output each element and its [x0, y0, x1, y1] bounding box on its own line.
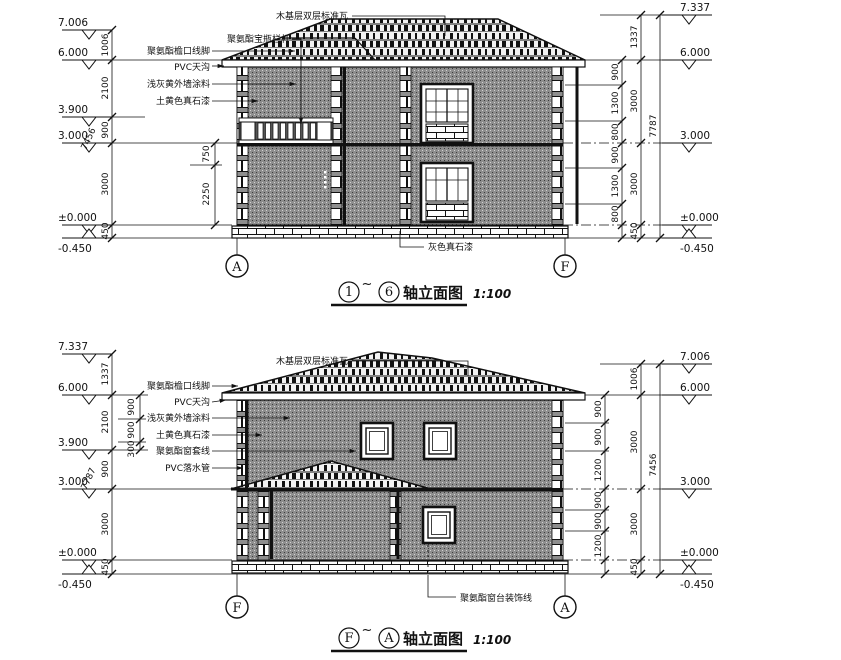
- level-label: -0.450: [58, 243, 92, 255]
- level-label: 3.900: [58, 437, 88, 449]
- annotation-gutter: PVC天沟: [174, 61, 210, 73]
- title-axis-start: F: [344, 631, 353, 646]
- bottom-left-dim-chain: 1337 2100 900 3000 450 7787 900 900 300: [80, 350, 144, 578]
- dim-value: 1006: [630, 367, 640, 390]
- plinth-brick-band: [232, 561, 568, 573]
- top-title: 1 ~ 6 轴立面图 1:100: [331, 277, 511, 305]
- annotation-roof-tile: 木基层双层标准瓦: [276, 355, 348, 367]
- title-axis-end: 6: [385, 285, 393, 300]
- dim-value: 450: [630, 558, 640, 575]
- axis-bubble-left: A: [231, 260, 242, 275]
- dim-total: 7456: [649, 453, 659, 476]
- balcony-railing: [239, 118, 333, 144]
- annotation-gutter: PVC天沟: [174, 396, 210, 408]
- window-spandrel-brick: [426, 203, 468, 220]
- dim-value: 800: [611, 205, 621, 222]
- annotation-sill-line: 聚氨酯窗台装饰线: [460, 592, 532, 604]
- dim-value: 3000: [630, 430, 640, 453]
- bottom-right-levels: 7.006 6.000 3.000 ±0.000 -0.450: [662, 351, 719, 591]
- eave-fascia-gutter: [222, 393, 585, 400]
- title-text: 轴立面图: [403, 630, 463, 648]
- level-label: ±0.000: [58, 212, 97, 224]
- level-label: 3.000: [680, 130, 710, 142]
- dim-value: 800: [611, 123, 621, 140]
- level-label: -0.450: [680, 579, 714, 591]
- annotation-downpipe: PVC落水管: [165, 462, 210, 474]
- dim-value: 1337: [630, 26, 640, 49]
- dim-value: 450: [101, 558, 111, 575]
- dim-value: 3000: [101, 512, 111, 535]
- top-building: [222, 19, 585, 238]
- upper-window-2: [424, 423, 456, 459]
- dim-value: 900: [127, 421, 137, 438]
- dim-value: 900: [594, 512, 604, 529]
- level-label: -0.450: [58, 579, 92, 591]
- dim-value: 450: [630, 222, 640, 239]
- dim-value: 3000: [630, 172, 640, 195]
- level-label: 6.000: [58, 47, 88, 59]
- annotation-eave-line: 聚氨酯檐口线脚: [147, 380, 210, 392]
- title-tilde: ~: [362, 277, 373, 292]
- dim-value: 750: [202, 145, 212, 162]
- dim-value: 1300: [611, 91, 621, 114]
- top-axis-bubbles: A F: [226, 238, 576, 277]
- dim-value: 2100: [101, 76, 111, 99]
- axis-bubble-right: F: [560, 260, 569, 275]
- level-label: 6.000: [680, 47, 710, 59]
- bottom-elevation: 7.337 6.000 3.900 3.000 ±0.000 -0.450 13…: [58, 341, 719, 651]
- dim-value: 1300: [611, 174, 621, 197]
- level-label: 3.900: [58, 104, 88, 116]
- bottom-building: [222, 352, 585, 573]
- annotation-window-trim: 聚氨酯窗套线: [156, 445, 210, 457]
- dim-value: 1337: [101, 363, 111, 386]
- dim-value: 900: [611, 63, 621, 80]
- elevation-drawing-canvas: 7.006 6.000 3.900 3.000 ±0.000 -0.450 10…: [0, 0, 841, 660]
- annotation-eave-line: 聚氨酯檐口线脚: [147, 45, 210, 57]
- annotation-roof-tile: 木基层双层标准瓦: [276, 10, 348, 22]
- dim-value: 3000: [630, 512, 640, 535]
- top-elevation: 7.006 6.000 3.900 3.000 ±0.000 -0.450 10…: [58, 2, 719, 305]
- level-label: ±0.000: [680, 547, 719, 559]
- annotation-baluster: 聚氨酯宝瓶栏杆: [227, 33, 290, 45]
- title-tilde: ~: [362, 623, 373, 638]
- axis-bubble-right: A: [559, 601, 570, 616]
- level-label: 7.337: [680, 2, 710, 14]
- dim-total: 7787: [80, 467, 99, 492]
- dim-value: 3000: [630, 89, 640, 112]
- dim-value: 3000: [101, 172, 111, 195]
- dim-value: 2250: [202, 182, 212, 205]
- level-label: 7.006: [680, 351, 710, 363]
- annotation-stone-paint: 土黄色真石漆: [156, 95, 210, 107]
- dim-value: 900: [101, 121, 111, 138]
- dim-value: 900: [611, 146, 621, 163]
- dim-value: 1200: [594, 458, 604, 481]
- level-label: 6.000: [58, 382, 88, 394]
- top-right-levels: 7.337 6.000 3.000 ±0.000 -0.450: [662, 2, 719, 255]
- bottom-title: F ~ A 轴立面图 1:100: [331, 623, 511, 651]
- annotation-plinth-paint: 灰色真石漆: [428, 241, 473, 253]
- axis-bubble-left: F: [232, 601, 241, 616]
- level-label: -0.450: [680, 243, 714, 255]
- window-spandrel-brick: [426, 124, 468, 141]
- dim-value: 900: [594, 491, 604, 508]
- top-left-dim-chain: 1006 2100 900 3000 450 7456 750 2250: [80, 26, 219, 242]
- dim-value: 450: [101, 222, 111, 239]
- floor-slab-line: [237, 488, 563, 492]
- upper-window-1: [361, 423, 393, 459]
- title-scale: 1:100: [473, 633, 511, 647]
- level-label: ±0.000: [58, 547, 97, 559]
- railing-post: [317, 122, 331, 140]
- dim-value: 900: [101, 460, 111, 477]
- title-scale: 1:100: [473, 287, 511, 301]
- architectural-elevation-sheet: 7.006 6.000 3.900 3.000 ±0.000 -0.450 10…: [0, 0, 841, 660]
- level-label: 7.006: [58, 17, 88, 29]
- annotation-stone-paint: 土黄色真石漆: [156, 429, 210, 441]
- dim-value: 1200: [594, 534, 604, 557]
- title-text: 轴立面图: [403, 284, 463, 302]
- lower-window: [423, 507, 455, 543]
- bottom-right-dim-chains: 900 900 1200 900 900 1200 1006 3000 3000…: [594, 360, 664, 578]
- annotation-wall-paint: 浅灰黄外墙涂料: [147, 412, 210, 424]
- title-axis-start: 1: [345, 285, 353, 300]
- upper-window: [421, 84, 473, 143]
- railing-post: [241, 122, 255, 140]
- dim-value: 900: [594, 400, 604, 417]
- dim-value: 1006: [101, 33, 111, 56]
- level-label: 6.000: [680, 382, 710, 394]
- lower-window: [421, 163, 473, 222]
- floor-slab-line: [237, 143, 563, 147]
- dim-value: 900: [127, 398, 137, 415]
- title-axis-end: A: [383, 631, 394, 646]
- annotation-wall-paint: 浅灰黄外墙涂料: [147, 78, 210, 90]
- dim-value: 2100: [101, 410, 111, 433]
- dim-value: 900: [594, 428, 604, 445]
- level-label: ±0.000: [680, 212, 719, 224]
- dim-total: 7787: [649, 115, 659, 138]
- level-label: 7.337: [58, 341, 88, 353]
- eave-fascia-gutter: [222, 60, 585, 67]
- level-label: 3.000: [680, 476, 710, 488]
- top-right-dim-chains: 900 1300 800 900 1300 800 1337 3000 3000…: [611, 11, 664, 242]
- dim-value: 300: [127, 440, 137, 457]
